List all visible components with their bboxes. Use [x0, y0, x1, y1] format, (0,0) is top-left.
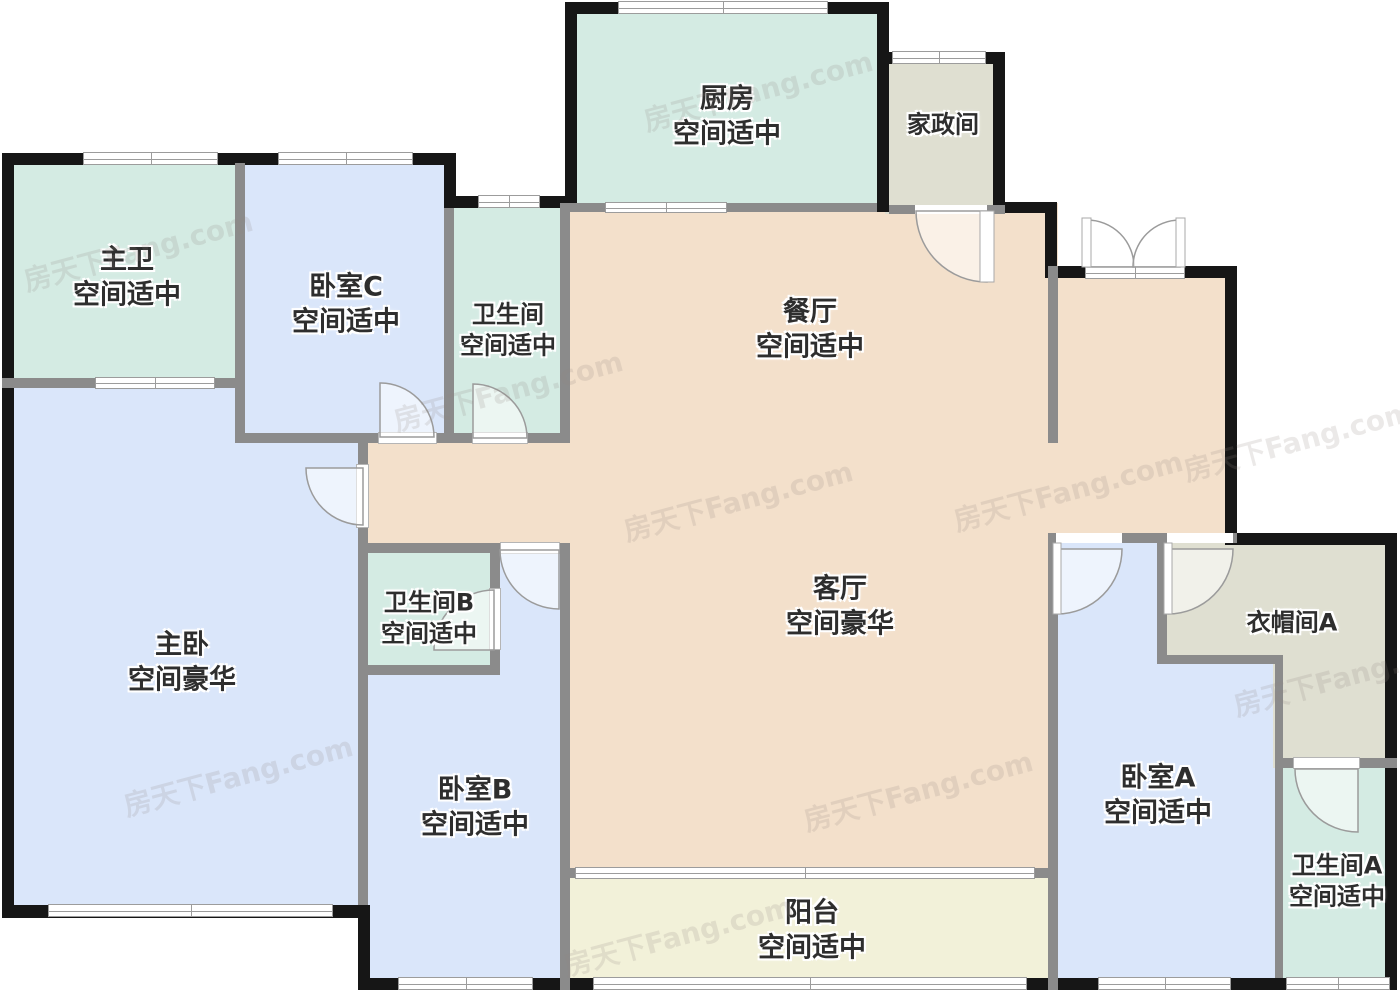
label-bathroom-a: 卫生间A 空间适中	[1289, 850, 1385, 911]
entry-door-left-arc	[1087, 220, 1134, 267]
door-opening	[472, 432, 528, 444]
room-desc: 空间适中	[73, 278, 181, 313]
label-bedroom-c: 卧室C 空间适中	[292, 270, 400, 339]
room-name: 卧室B	[421, 773, 529, 808]
entry-door-right-leaf	[1176, 218, 1185, 267]
window	[1286, 977, 1390, 990]
door-opening	[1167, 533, 1233, 543]
wall	[1275, 655, 1283, 978]
wall	[1057, 266, 1085, 278]
wall	[560, 203, 570, 443]
window	[478, 195, 540, 208]
window	[48, 904, 333, 917]
wall	[877, 2, 889, 212]
sliding-door	[605, 202, 727, 213]
window	[892, 51, 986, 64]
room-name: 卫生间A	[1289, 850, 1385, 881]
wall	[1225, 266, 1237, 545]
door-opening	[1293, 757, 1360, 769]
room-cloakroom-a	[1273, 533, 1397, 768]
room-corridor	[358, 433, 570, 553]
wall	[444, 208, 454, 443]
label-master-bath: 主卫 空间适中	[73, 243, 181, 312]
entry-threshold	[1085, 266, 1185, 279]
window	[1098, 977, 1231, 990]
room-desc: 空间适中	[1104, 796, 1212, 831]
label-bathroom: 卫生间 空间适中	[460, 299, 556, 360]
wall	[1048, 533, 1058, 990]
wall	[235, 163, 245, 443]
room-desc: 空间适中	[421, 808, 529, 843]
door-opening	[500, 542, 560, 554]
room-name: 卧室C	[292, 270, 400, 305]
wall	[565, 2, 577, 210]
room-name: 衣帽间A	[1247, 608, 1338, 639]
room-desc: 空间豪华	[128, 663, 236, 698]
room-name: 家政间	[907, 110, 979, 141]
room-name: 卫生间B	[381, 587, 477, 618]
label-housekeeping: 家政间	[907, 110, 979, 141]
window	[398, 977, 533, 990]
room-desc: 空间适中	[756, 330, 864, 365]
room-entry-hall	[1048, 266, 1237, 545]
label-bedroom-b: 卧室B 空间适中	[421, 773, 529, 842]
window	[83, 152, 218, 165]
label-kitchen: 厨房 空间适中	[673, 82, 781, 151]
label-dining: 餐厅 空间适中	[756, 295, 864, 364]
entry-door-right-arc	[1133, 220, 1180, 267]
door-opening	[915, 205, 987, 214]
label-balcony: 阳台 空间适中	[758, 896, 866, 965]
sliding-door	[575, 867, 1035, 879]
wall	[1157, 543, 1167, 663]
wall	[560, 543, 570, 990]
sliding-door	[95, 377, 215, 389]
room-desc: 空间适中	[1289, 881, 1385, 912]
room-name: 客厅	[786, 572, 894, 607]
room-name: 主卫	[73, 243, 181, 278]
door-opening	[356, 464, 369, 528]
label-cloakroom-a: 衣帽间A	[1247, 608, 1338, 639]
wall	[1237, 533, 1397, 545]
door-opening	[378, 432, 437, 444]
room-name: 餐厅	[756, 295, 864, 330]
room-name: 卫生间	[460, 299, 556, 330]
door-opening	[1056, 533, 1122, 543]
room-desc: 空间适中	[381, 618, 477, 649]
wall	[358, 543, 500, 553]
room-name: 厨房	[673, 82, 781, 117]
label-bedroom-a: 卧室A 空间适中	[1104, 761, 1212, 830]
entry-door-left-leaf	[1082, 218, 1091, 267]
room-desc: 空间适中	[758, 931, 866, 966]
wall	[1157, 655, 1283, 664]
room-desc: 空间适中	[292, 305, 400, 340]
window	[278, 152, 413, 165]
wall	[993, 52, 1005, 214]
room-name: 卧室A	[1104, 761, 1212, 796]
window	[618, 1, 828, 14]
label-living: 客厅 空间豪华	[786, 572, 894, 641]
door-opening	[489, 588, 501, 650]
label-master-bedroom: 主卧 空间豪华	[128, 628, 236, 697]
wall	[358, 665, 500, 675]
wall	[2, 153, 14, 918]
window	[593, 977, 1027, 990]
floorplan: 厨房 空间适中 家政间 主卫 空间适中 卧室C 空间适中 卫生间 空间适中 餐厅…	[0, 0, 1400, 994]
room-desc: 空间豪华	[786, 607, 894, 642]
room-desc: 空间适中	[673, 117, 781, 152]
room-desc: 空间适中	[460, 330, 556, 361]
label-bathroom-b: 卫生间B 空间适中	[381, 587, 477, 648]
room-name: 阳台	[758, 896, 866, 931]
room-name: 主卧	[128, 628, 236, 663]
wall	[1048, 266, 1058, 443]
